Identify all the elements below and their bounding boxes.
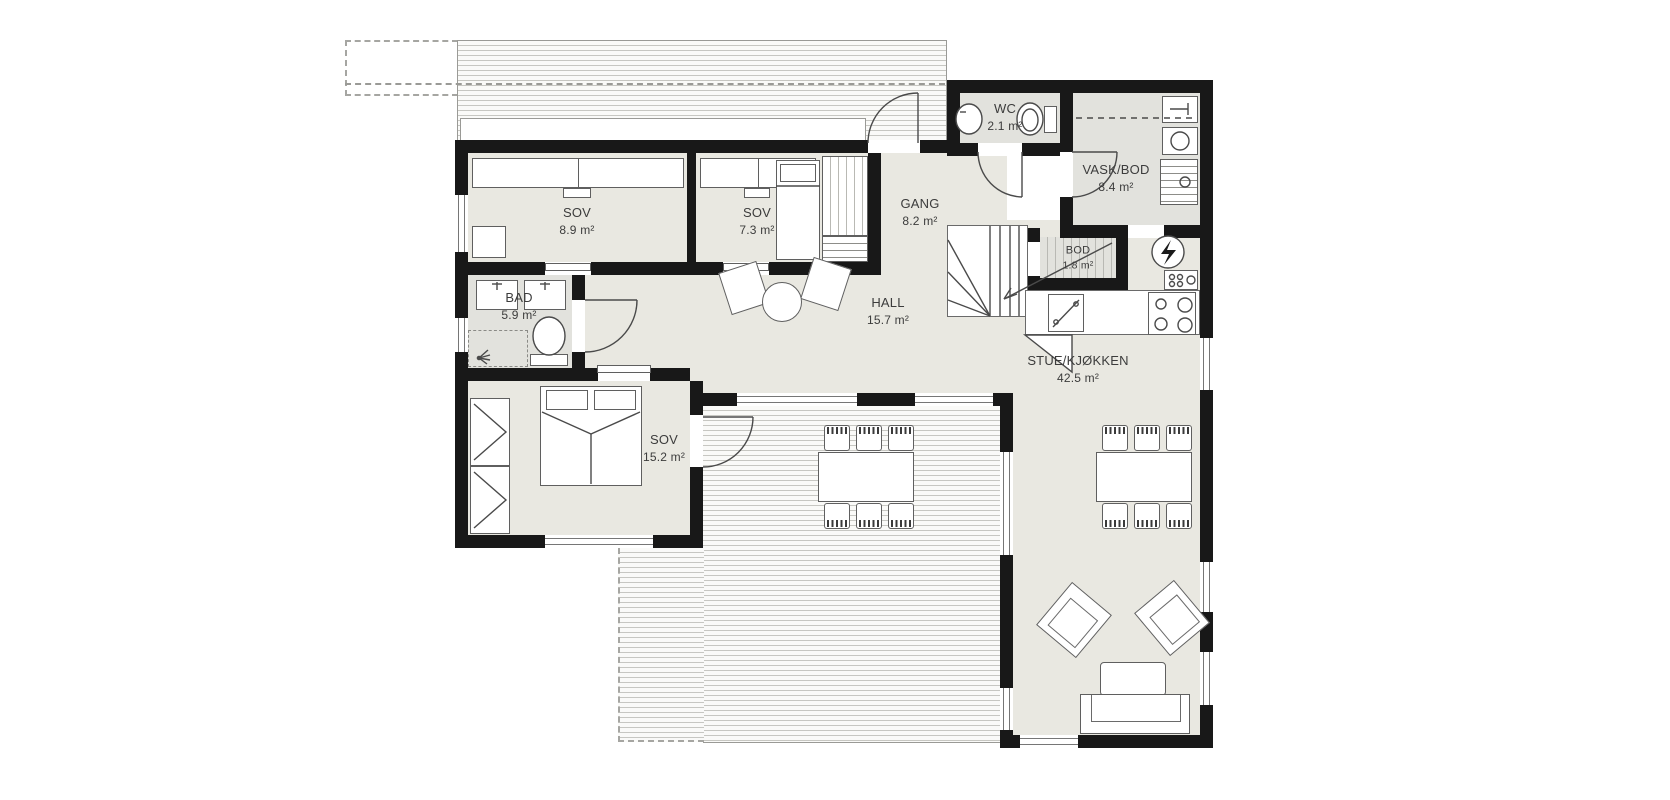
terrace-chair: [856, 503, 882, 529]
stove: [1148, 292, 1196, 335]
staircase: [947, 225, 1028, 317]
deck-center-dashed-line: [345, 83, 945, 85]
armchair-left-seat: [1047, 598, 1098, 649]
room-area: 2.1 m²: [987, 118, 1022, 134]
window-hall-terrace1: [737, 393, 857, 406]
dining-chair: [1102, 425, 1128, 451]
sov3-door-leaf: [597, 365, 651, 373]
room-area: 8.4 m²: [1082, 179, 1149, 195]
bod-door-gap: [1028, 242, 1040, 276]
room-area: 15.2 m²: [643, 449, 685, 465]
entrance-door-gap: [868, 140, 920, 153]
room-label-bad: BAD 5.9 m²: [501, 289, 536, 323]
terrace-chair: [856, 425, 882, 451]
room-name: SOV: [559, 204, 594, 222]
hall-round-table: [762, 282, 802, 322]
wall-wardrobe-east: [868, 153, 881, 275]
sofa: [1080, 694, 1190, 734]
room-area: 15.7 m²: [867, 312, 909, 328]
room-area: 5.9 m²: [501, 307, 536, 323]
room-name: STUE/KJØKKEN: [1027, 352, 1128, 370]
kitchen-corner-sink: [1164, 270, 1198, 290]
room-label-sov1: SOV 8.9 m²: [559, 204, 594, 238]
room-name: HALL: [867, 294, 909, 312]
window-right-kitchen: [1200, 338, 1213, 390]
window-west-bad: [455, 318, 468, 352]
sov2-bed-pillow: [780, 164, 816, 182]
window-hall-terrace2: [915, 393, 993, 406]
coffee-table: [1100, 662, 1166, 696]
wc-toilet-tank: [1044, 106, 1057, 133]
wall-top-west: [455, 140, 868, 153]
terrace-chair: [824, 425, 850, 451]
room-area: 7.3 m²: [739, 222, 774, 238]
wall-right: [1200, 80, 1213, 748]
bad-toilet-tank: [530, 354, 568, 366]
wardrobe-sliding: [822, 156, 868, 236]
room-label-wc: WC 2.1 m²: [987, 100, 1022, 134]
room-name: SOV: [739, 204, 774, 222]
dining-chair: [1134, 425, 1160, 451]
room-name: VASK/BOD: [1082, 161, 1149, 179]
sov1-nightstand: [472, 226, 506, 258]
dining-table: [1096, 452, 1192, 502]
room-label-vaskbod: VASK/BOD 8.4 m²: [1082, 161, 1149, 195]
wc-door-gap: [978, 143, 1022, 156]
water-heater-icon: [1162, 127, 1198, 155]
terrace-door-gap: [690, 415, 703, 467]
dining-chair: [1166, 503, 1192, 529]
room-name: BAD: [501, 289, 536, 307]
wall-top-northeast: [947, 80, 1213, 93]
room-label-gang: GANG 8.2 m²: [900, 195, 939, 229]
deck-dashed-extension: [345, 40, 458, 96]
wall-bod-east: [1116, 237, 1128, 278]
dining-chair: [1166, 425, 1192, 451]
terrace-chair: [824, 503, 850, 529]
dishwasher: [1048, 294, 1084, 332]
room-label-bod: BOD 1.8 m²: [1063, 243, 1094, 272]
window-right-living2: [1200, 652, 1213, 705]
sov3-pillow-left: [546, 390, 588, 410]
vask-niche-gap: [1128, 225, 1164, 238]
wall-bedroom-divider: [687, 153, 696, 262]
window-living-west1: [1000, 452, 1013, 555]
window-bottom-living: [1020, 735, 1078, 748]
bad-door-gap: [572, 300, 585, 352]
wall-bod-south: [1028, 278, 1128, 290]
sov1-desk-seam: [578, 158, 579, 188]
window-right-living1: [1200, 562, 1213, 612]
sov1-door-leaf: [545, 263, 591, 271]
vask-door-gap: [1060, 152, 1073, 197]
sov1-chair: [563, 188, 591, 198]
room-label-sov3: SOV 15.2 m²: [643, 431, 685, 465]
dining-chair: [1134, 503, 1160, 529]
terrace-extension: [618, 548, 704, 742]
washer-icon: [1160, 159, 1198, 205]
room-name: WC: [987, 100, 1022, 118]
room-label-stue: STUE/KJØKKEN 42.5 m²: [1027, 352, 1128, 386]
room-label-sov2: SOV 7.3 m²: [739, 204, 774, 238]
sov3-wardrobe2: [470, 466, 510, 534]
terrace-chair: [888, 425, 914, 451]
window-bottom-sov3: [545, 535, 653, 548]
wall-bad-south: [455, 368, 690, 381]
room-area: 8.2 m²: [900, 213, 939, 229]
dining-chair: [1102, 503, 1128, 529]
room-area: 1.8 m²: [1063, 258, 1094, 272]
room-area: 8.9 m²: [559, 222, 594, 238]
room-label-hall: HALL 15.7 m²: [867, 294, 909, 328]
window-west-sov1: [455, 195, 468, 252]
room-area: 42.5 m²: [1027, 370, 1128, 386]
terrace-table: [818, 452, 914, 502]
room-name: SOV: [643, 431, 685, 449]
floor-plan: SOV 8.9 m² SOV 7.3 m² GANG 8.2 m² WC 2.1…: [0, 0, 1670, 800]
sov2-chair: [744, 188, 770, 198]
window-living-west2: [1000, 688, 1013, 730]
terrace-chair: [888, 503, 914, 529]
sov3-pillow-right: [594, 390, 636, 410]
sofa-seat: [1091, 695, 1181, 722]
shower-icon: [468, 330, 528, 367]
sov3-wardrobe1: [470, 398, 510, 466]
room-name: BOD: [1063, 243, 1094, 258]
laundry-cabinet-icon: [1162, 96, 1198, 123]
room-name: GANG: [900, 195, 939, 213]
wardrobe-shelves: [822, 236, 868, 262]
sov2-desk-seam: [758, 158, 759, 188]
